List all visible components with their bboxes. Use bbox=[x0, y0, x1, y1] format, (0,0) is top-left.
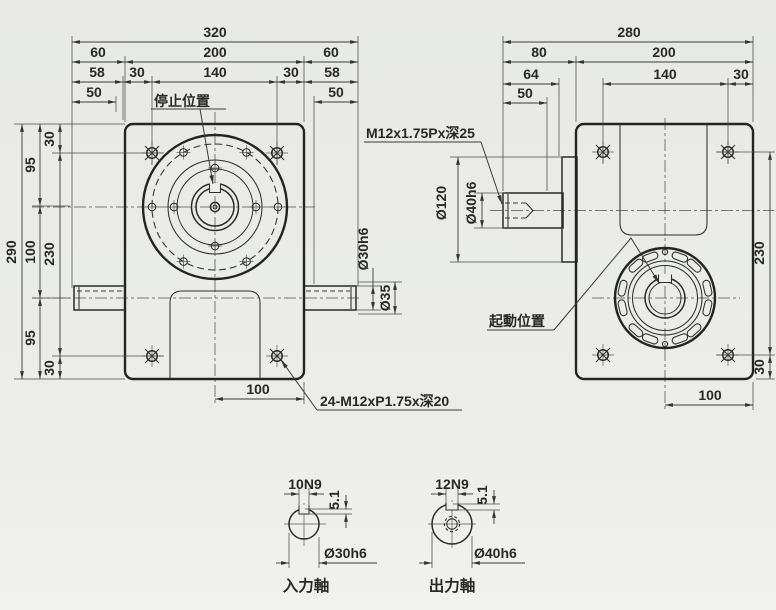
dim-front-60-right: 60 bbox=[323, 44, 339, 60]
caption-output-shaft: 出力軸 bbox=[429, 576, 476, 595]
dim-side-64: 64 bbox=[523, 66, 539, 82]
dim-front-30-right: 30 bbox=[283, 64, 299, 80]
dim-front-50-left: 50 bbox=[86, 84, 102, 100]
dim-front-60-left: 60 bbox=[90, 44, 106, 60]
drawing-canvas: 320 60 200 60 58 30 140 30 58 50 50 bbox=[0, 0, 776, 610]
dim-output-keyway: 12N9 bbox=[435, 476, 469, 492]
dim-side-230: 230 bbox=[751, 241, 767, 265]
dim-side-200: 200 bbox=[652, 44, 676, 60]
label-stop-position: 停止位置 bbox=[154, 93, 210, 109]
dim-input-keyway: 10N9 bbox=[288, 476, 322, 492]
dim-front-230: 230 bbox=[41, 242, 57, 266]
note-side-tapped-hole: M12x1.75Px深25 bbox=[366, 125, 475, 141]
dim-side-bottom-100: 100 bbox=[698, 387, 722, 403]
dim-front-30-bot: 30 bbox=[41, 360, 57, 376]
caption-input-shaft: 入力軸 bbox=[283, 576, 330, 595]
dim-side-overall-width: 280 bbox=[617, 24, 641, 40]
dim-side-shaft-dia: Ø40h6 bbox=[463, 181, 479, 224]
dim-side-boss-dia: Ø120 bbox=[433, 186, 449, 220]
dim-input-keyway-depth: 5.1 bbox=[326, 490, 342, 510]
engineering-drawing-cam-indexer: 320 60 200 60 58 30 140 30 58 50 50 bbox=[0, 0, 776, 610]
dim-side-80: 80 bbox=[531, 44, 547, 60]
dim-side-30-bot: 30 bbox=[751, 359, 767, 375]
dim-front-200: 200 bbox=[203, 44, 227, 60]
dim-front-bottom-100: 100 bbox=[246, 381, 270, 397]
note-front-tapped-holes: 24-M12xP1.75x深20 bbox=[320, 393, 449, 409]
dim-output-keyway-depth: 5.1 bbox=[474, 485, 490, 505]
dim-front-shaft-dia: Ø30h6 bbox=[355, 227, 371, 270]
dim-side-140: 140 bbox=[653, 66, 677, 82]
dim-input-dia: Ø30h6 bbox=[324, 545, 367, 561]
dim-front-50-right: 50 bbox=[328, 84, 344, 100]
dim-front-58-right: 58 bbox=[324, 64, 340, 80]
dim-front-100: 100 bbox=[22, 240, 38, 264]
dim-front-58-left: 58 bbox=[89, 64, 105, 80]
label-start-position: 起動位置 bbox=[488, 313, 545, 329]
dim-front-95-top: 95 bbox=[22, 157, 38, 173]
dim-front-30-top: 30 bbox=[41, 131, 57, 147]
dim-front-overall-width: 320 bbox=[203, 24, 227, 40]
dim-front-95-bot: 95 bbox=[22, 330, 38, 346]
dim-side-30-top: 30 bbox=[733, 66, 749, 82]
dim-front-140: 140 bbox=[203, 64, 227, 80]
dim-output-dia: Ø40h6 bbox=[474, 545, 517, 561]
dim-side-50: 50 bbox=[517, 85, 533, 101]
dim-front-shoulder-dia: Ø35 bbox=[377, 285, 393, 312]
dim-front-290: 290 bbox=[3, 240, 19, 264]
dim-front-30-left: 30 bbox=[129, 64, 145, 80]
